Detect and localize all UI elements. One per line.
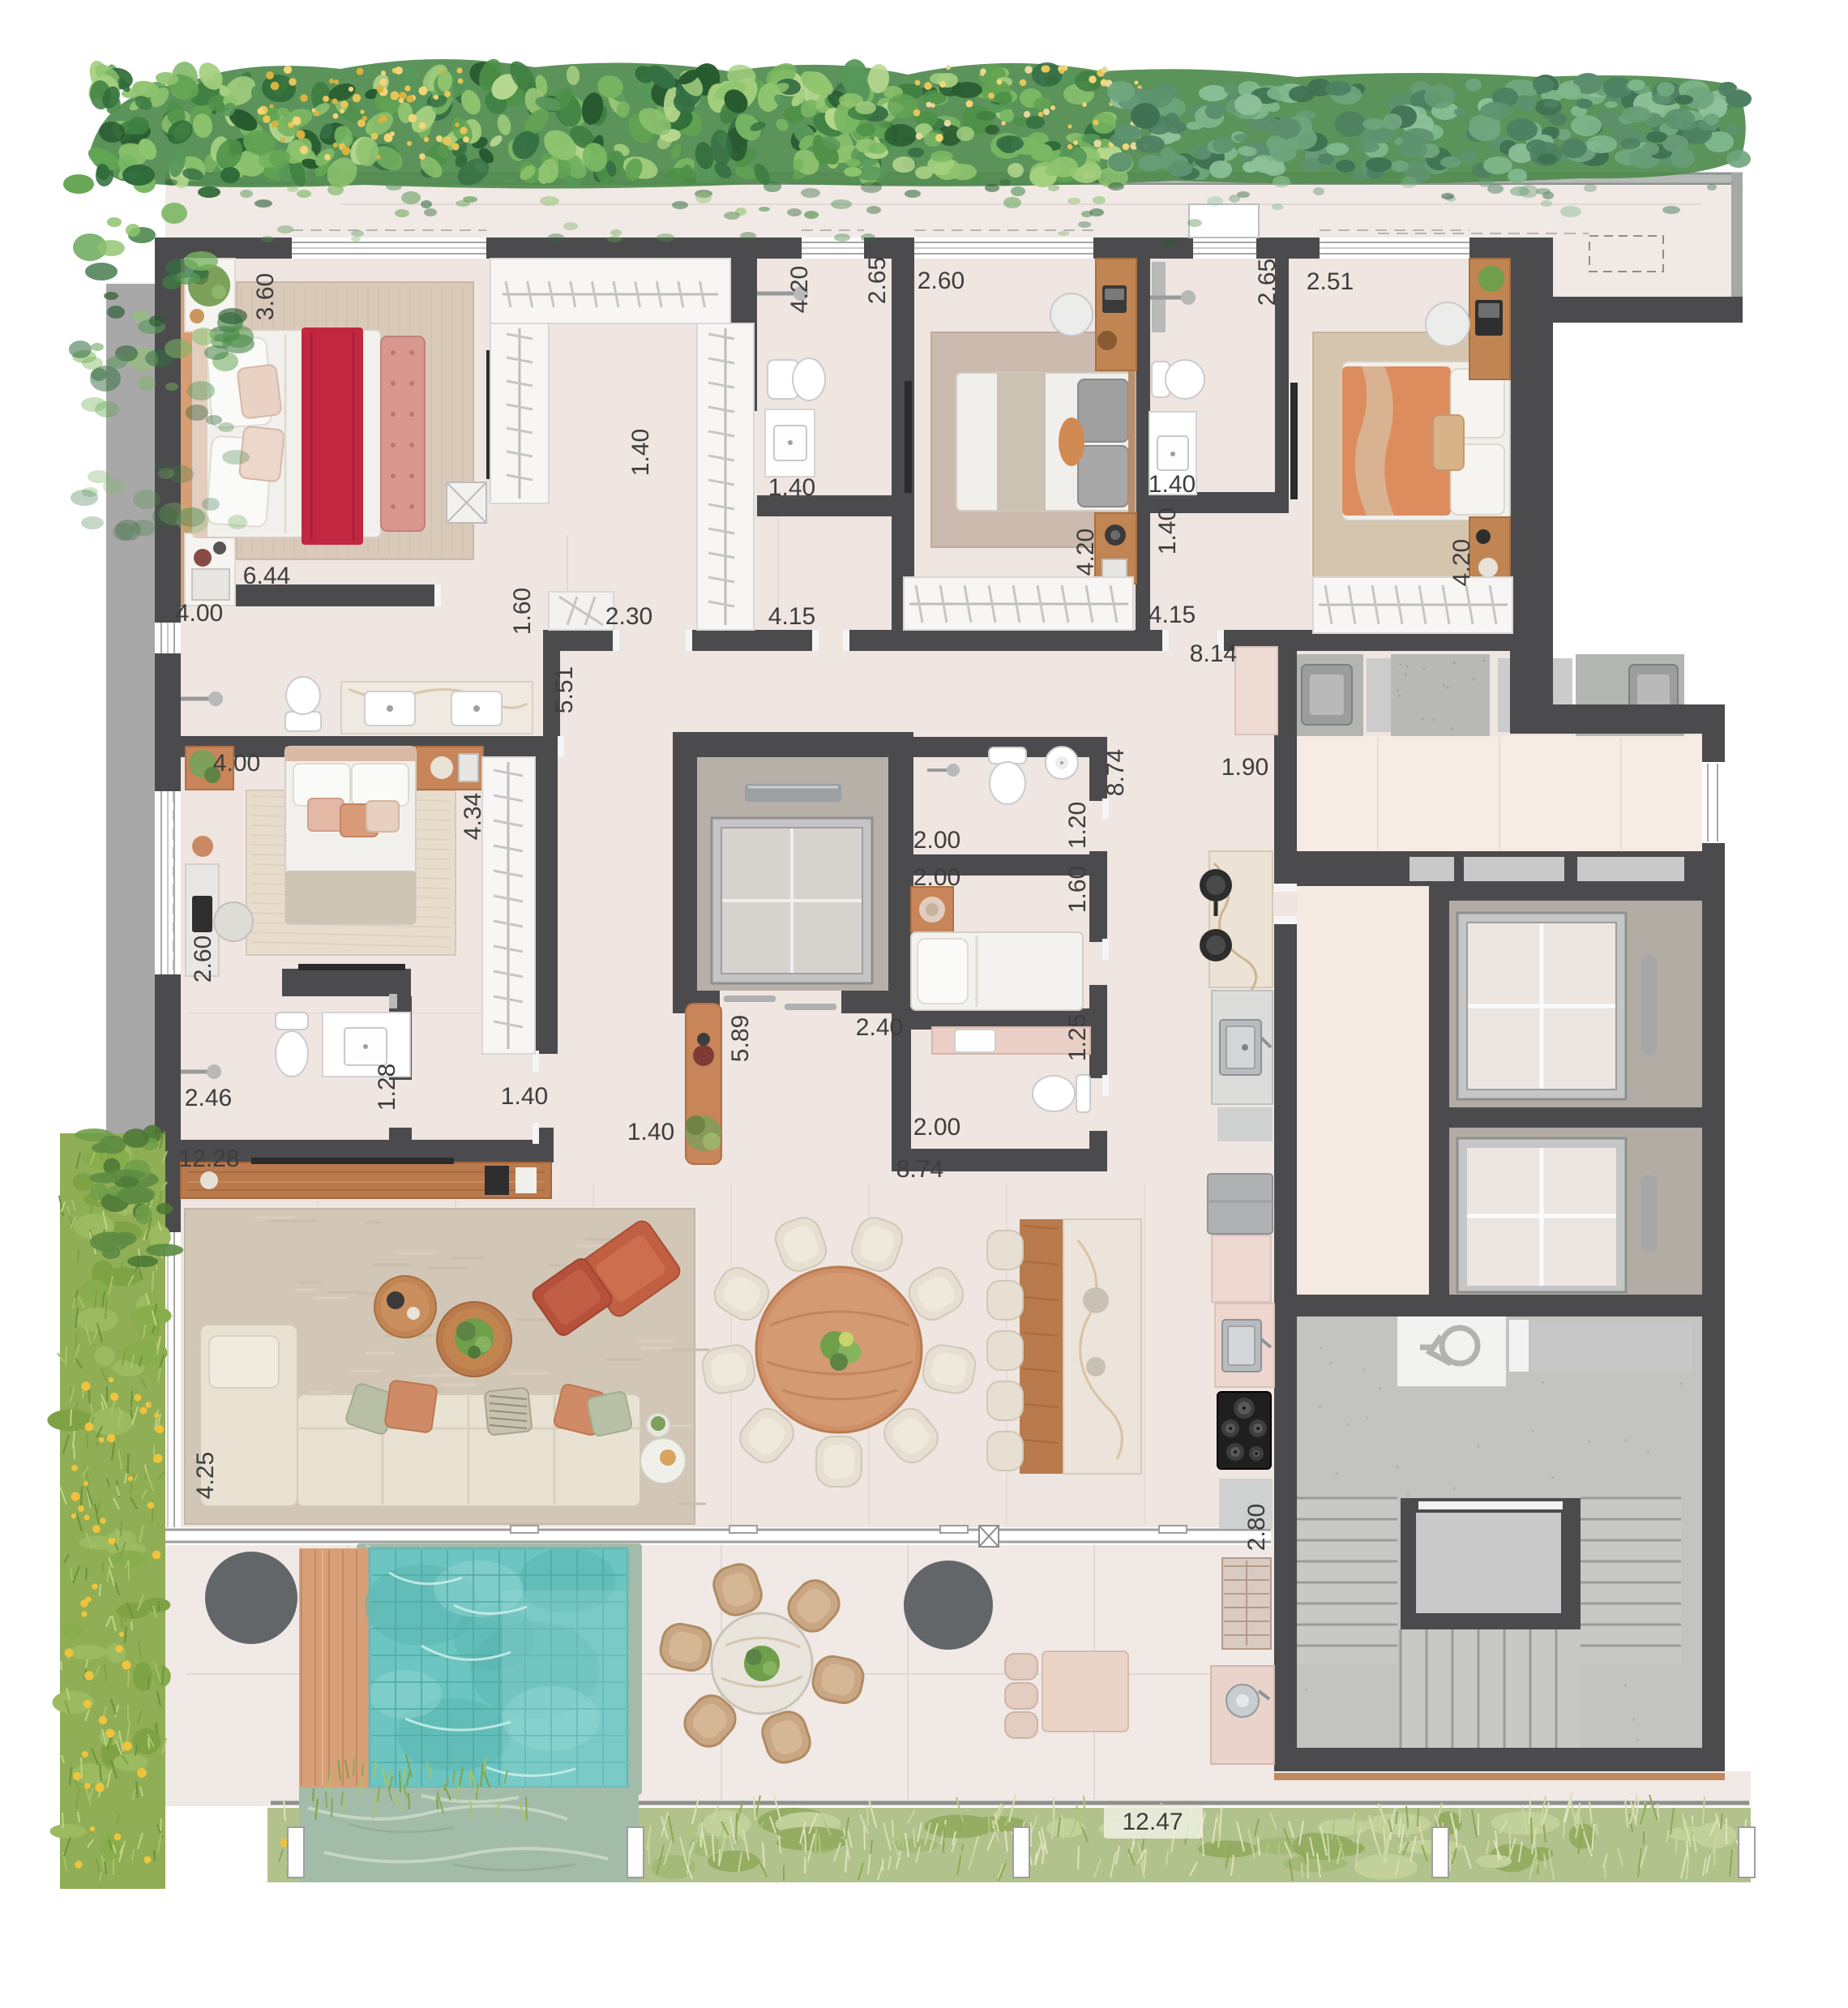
svg-text:2.80: 2.80 bbox=[1243, 1504, 1270, 1551]
svg-text:5.89: 5.89 bbox=[727, 1015, 754, 1062]
svg-text:1.60: 1.60 bbox=[1064, 866, 1091, 913]
svg-text:2.60: 2.60 bbox=[918, 268, 965, 294]
svg-text:1.40: 1.40 bbox=[1149, 471, 1196, 498]
svg-text:4.15: 4.15 bbox=[1149, 602, 1196, 628]
svg-text:2.00: 2.00 bbox=[913, 864, 960, 891]
svg-text:2.51: 2.51 bbox=[1307, 268, 1354, 295]
svg-text:1.25: 1.25 bbox=[1064, 1014, 1091, 1061]
svg-text:4.34: 4.34 bbox=[460, 793, 486, 840]
svg-text:4.20: 4.20 bbox=[786, 266, 813, 313]
svg-text:2.00: 2.00 bbox=[913, 827, 960, 854]
svg-text:4.20: 4.20 bbox=[1448, 539, 1475, 586]
svg-text:4.00: 4.00 bbox=[213, 750, 260, 777]
svg-text:8.74: 8.74 bbox=[1102, 749, 1129, 796]
svg-text:2.40: 2.40 bbox=[856, 1014, 903, 1041]
svg-text:4.20: 4.20 bbox=[1072, 529, 1099, 576]
svg-text:1.40: 1.40 bbox=[501, 1083, 548, 1110]
svg-text:5.51: 5.51 bbox=[551, 666, 578, 713]
svg-text:1.20: 1.20 bbox=[1064, 802, 1091, 849]
svg-text:2.00: 2.00 bbox=[913, 1114, 960, 1141]
svg-text:8.14: 8.14 bbox=[1190, 640, 1237, 667]
svg-text:2.30: 2.30 bbox=[605, 603, 652, 630]
svg-text:4.00: 4.00 bbox=[176, 600, 223, 627]
svg-text:2.46: 2.46 bbox=[185, 1085, 232, 1111]
svg-text:1.28: 1.28 bbox=[374, 1064, 400, 1111]
svg-text:4.25: 4.25 bbox=[192, 1452, 219, 1499]
svg-text:12.47: 12.47 bbox=[1122, 1809, 1183, 1835]
svg-text:12.28: 12.28 bbox=[178, 1145, 239, 1172]
svg-text:3.60: 3.60 bbox=[252, 273, 279, 320]
svg-text:1.40: 1.40 bbox=[1154, 507, 1181, 554]
svg-text:2.65: 2.65 bbox=[864, 257, 891, 304]
svg-text:1.60: 1.60 bbox=[509, 588, 536, 635]
svg-text:2.65: 2.65 bbox=[1254, 259, 1281, 306]
svg-text:2.60: 2.60 bbox=[190, 935, 216, 983]
svg-text:4.15: 4.15 bbox=[768, 603, 815, 630]
svg-text:1.40: 1.40 bbox=[627, 1119, 674, 1145]
svg-text:1.40: 1.40 bbox=[768, 474, 815, 501]
svg-text:1.40: 1.40 bbox=[627, 429, 654, 476]
svg-text:8.74: 8.74 bbox=[896, 1156, 943, 1183]
svg-text:6.44: 6.44 bbox=[243, 563, 290, 589]
svg-text:1.90: 1.90 bbox=[1221, 754, 1268, 781]
